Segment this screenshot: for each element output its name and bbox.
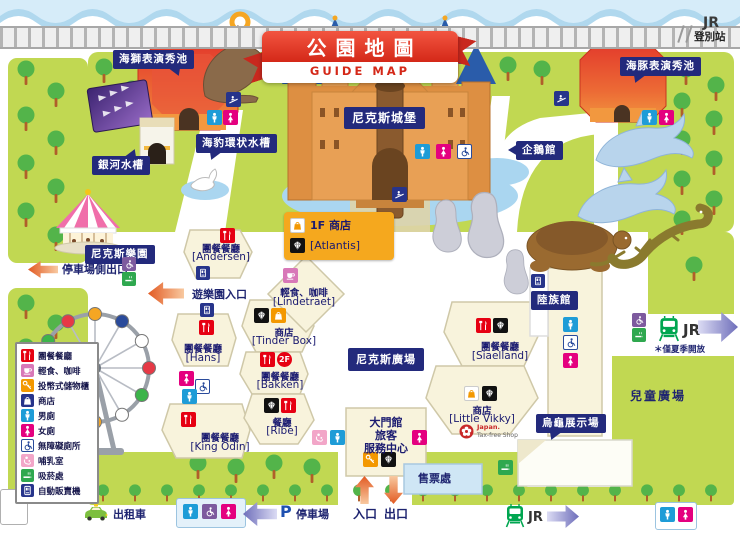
- mens-toilet-icon: [182, 389, 197, 404]
- accessible-toilet-icon: [195, 379, 210, 394]
- legend-row: 投幣式儲物櫃: [21, 379, 93, 392]
- smoking-area-icon: [632, 328, 646, 342]
- map-subtitle: GUIDE MAP: [262, 64, 458, 78]
- seal-ring-tank-label: 海豹環状水槽: [196, 134, 277, 153]
- atlantis-callout: 1F 商店 [Atlantis]: [284, 212, 394, 260]
- vending-machine-icon: [21, 484, 34, 497]
- mens-toilet-icon: [183, 504, 198, 519]
- gem-shop-icon: [493, 318, 508, 333]
- accessible-toilet-icon: [122, 257, 136, 271]
- shop-icon: [464, 386, 479, 401]
- castle-label: 尼克斯城堡: [344, 107, 425, 129]
- bakken-name: [Bakken]: [248, 379, 312, 391]
- children-plaza-text: 兒童廣場: [630, 390, 686, 403]
- parking-side-exit-text: 停車場側出口: [62, 264, 128, 276]
- dolphin-pool-label: 海豚表演秀池: [620, 57, 701, 76]
- taxfree-sakura-icon: [459, 424, 474, 439]
- mens-toilet-icon: [21, 409, 34, 422]
- sea-lion-pool-label: 海獅表演秀池: [113, 50, 194, 69]
- andersen-name: [Andersen]: [184, 251, 258, 263]
- legend-row: 哺乳室: [21, 454, 93, 467]
- mens-toilet-icon: [563, 317, 578, 332]
- smoking-area-icon: [498, 460, 513, 475]
- gem-shop-icon: [290, 238, 305, 253]
- summer-only-text: ＊僅夏季開放: [654, 346, 705, 355]
- restaurant-icon: [281, 398, 296, 413]
- jr-train-icon: [658, 316, 680, 342]
- legend-row: 輕食、咖啡: [21, 364, 93, 377]
- gem-shop-icon: [254, 308, 269, 323]
- exit-text: 出口: [384, 508, 408, 521]
- accessible-toilet-icon: [21, 439, 34, 452]
- turtle-exhibit-label: 烏龜展示場: [536, 414, 606, 433]
- shop-icon: [271, 308, 286, 323]
- legend-row: 男廁: [21, 409, 93, 422]
- womens-toilet-icon: [563, 353, 578, 368]
- smoking-area-icon: [122, 272, 136, 286]
- restaurant-icon: [21, 349, 34, 362]
- nixe-square-label: 尼克斯廣場: [348, 348, 424, 371]
- tinder-box-name: [Tinder Box]: [242, 335, 326, 347]
- taxi-icon: [82, 503, 110, 523]
- mens-toilet-icon: [642, 110, 657, 125]
- mens-toilet-icon: [415, 144, 430, 159]
- penguin-house-label: 企鵝館: [516, 141, 563, 160]
- main-gate-line3: 服務中心: [350, 440, 422, 456]
- parking-p-text: P: [280, 503, 292, 521]
- king-odin-name: [King Odin]: [180, 441, 260, 453]
- nixe-land-label: 尼克斯樂園: [85, 245, 155, 264]
- legend-row: 女廁: [21, 424, 93, 437]
- ramp-icon: [554, 91, 569, 106]
- legend-row: 團餐餐廳: [21, 349, 93, 362]
- womens-toilet-icon: [221, 504, 236, 519]
- gem-shop-icon: [482, 386, 497, 401]
- legend-row: 商店: [21, 394, 93, 407]
- jr-bottom-text: JR: [528, 511, 543, 525]
- mens-toilet-icon: [330, 430, 345, 445]
- taxfree-text: Japan. Tax-free Shop: [477, 424, 518, 439]
- lindetraet-name: [Lindetraet]: [262, 296, 346, 308]
- restaurant-icon: [181, 412, 196, 427]
- hans-name: [Hans]: [172, 352, 234, 364]
- vending-machine-icon: [200, 303, 214, 317]
- legend-box: 團餐餐廳 輕食、咖啡 投幣式儲物櫃 商店 男廁 女廁 無障礙廁所 哺乳室 吸菸處…: [15, 342, 99, 504]
- park-entrance-text: 遊樂園入口: [192, 289, 247, 301]
- legend-row: 吸菸處: [21, 469, 93, 482]
- park-guide-map: JR 登別站 公園地圖 GUIDE MAP 海獅表演秀池 銀河水槽 海豹環状水槽…: [0, 0, 740, 540]
- shop-icon: [290, 218, 305, 233]
- smoking-area-icon: [21, 469, 34, 482]
- atlantis-type: 1F 商店: [310, 217, 351, 233]
- ticket-office-text: 售票處: [418, 473, 451, 485]
- second-floor-badge: 2F: [277, 352, 292, 367]
- jr-train-icon: [505, 504, 525, 528]
- map-title: 公園地圖: [298, 32, 423, 61]
- legend-row: 自動販賣機: [21, 484, 93, 497]
- ribe-name: [Ribe]: [256, 425, 308, 437]
- taxi-text: 出租車: [113, 509, 146, 521]
- nursing-room-icon: [21, 454, 34, 467]
- mens-toilet-icon: [207, 110, 222, 125]
- womens-toilet-icon: [21, 424, 34, 437]
- vending-machine-icon: [531, 274, 545, 288]
- title-banner: 公園地圖 GUIDE MAP: [250, 28, 470, 90]
- restaurant-icon: [260, 352, 275, 367]
- ramp-icon: [392, 187, 407, 202]
- cafe-icon: [283, 268, 298, 283]
- entrance-text: 入口: [353, 508, 377, 521]
- womens-toilet-icon: [223, 110, 238, 125]
- accessible-toilet-icon: [563, 335, 578, 350]
- cafe-icon: [21, 364, 34, 377]
- accessible-toilet-icon: [457, 144, 472, 159]
- ribbon-band: 公園地圖 GUIDE MAP: [262, 31, 458, 83]
- galaxy-tank-label: 銀河水槽: [92, 156, 150, 175]
- locker-icon: [21, 379, 34, 392]
- mens-toilet-icon: [660, 507, 675, 522]
- womens-toilet-icon: [179, 371, 194, 386]
- womens-toilet-icon: [678, 507, 693, 522]
- vending-machine-icon: [196, 266, 210, 280]
- gem-shop-icon: [264, 398, 279, 413]
- womens-toilet-icon: [436, 144, 451, 159]
- shop-icon: [21, 394, 34, 407]
- accessible-toilet-icon: [202, 504, 217, 519]
- station-name-text: 登別站: [694, 32, 726, 44]
- siaelland-name: [Siaelland]: [460, 350, 540, 362]
- atlantis-name: [Atlantis]: [310, 239, 360, 252]
- restaurant-icon: [476, 318, 491, 333]
- restaurant-icon: [199, 320, 214, 335]
- land-animal-house-label: 陸族館: [531, 291, 578, 310]
- ramp-icon: [226, 92, 241, 107]
- nursing-room-icon: [312, 430, 327, 445]
- jr-mid-text: JR: [683, 322, 700, 339]
- parking-lot-text: 停車場: [296, 509, 329, 521]
- legend-row: 無障礙廁所: [21, 439, 93, 452]
- station-jr-text: JR: [703, 16, 719, 31]
- womens-toilet-icon: [659, 110, 674, 125]
- accessible-toilet-icon: [632, 313, 646, 327]
